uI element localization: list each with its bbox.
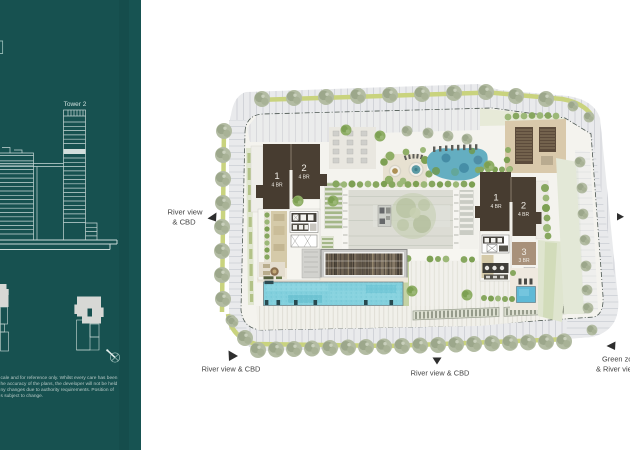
svg-text:s subject to change.: s subject to change. [1, 393, 44, 399]
svg-text:River view & CBD: River view & CBD [411, 369, 470, 378]
svg-text:& River view: & River view [596, 365, 630, 374]
svg-text:cale and for reference only. W: cale and for reference only. Whilst ever… [1, 375, 118, 381]
svg-text:3 BR: 3 BR [518, 258, 530, 264]
svg-text:he accuracy of the plans, the: he accuracy of the plans, the developer … [1, 381, 118, 387]
svg-text:4 BR: 4 BR [518, 212, 530, 218]
svg-text:River view: River view [167, 208, 203, 217]
svg-text:Green zone: Green zone [602, 355, 630, 364]
svg-text:Tower 2: Tower 2 [64, 101, 87, 108]
svg-text:4 BR: 4 BR [490, 204, 502, 210]
svg-text:4 BR: 4 BR [271, 183, 283, 189]
svg-text:2: 2 [301, 163, 306, 174]
svg-text:River view & CBD: River view & CBD [202, 365, 261, 374]
svg-text:2: 2 [521, 201, 526, 212]
svg-text:ny changes due to authority re: ny changes due to authority requirements… [1, 387, 115, 393]
svg-text:& CBD: & CBD [172, 218, 196, 227]
svg-text:1: 1 [493, 193, 498, 204]
svg-text:4 BR: 4 BR [298, 175, 310, 181]
svg-text:3: 3 [521, 247, 526, 257]
svg-text:1: 1 [274, 171, 279, 182]
